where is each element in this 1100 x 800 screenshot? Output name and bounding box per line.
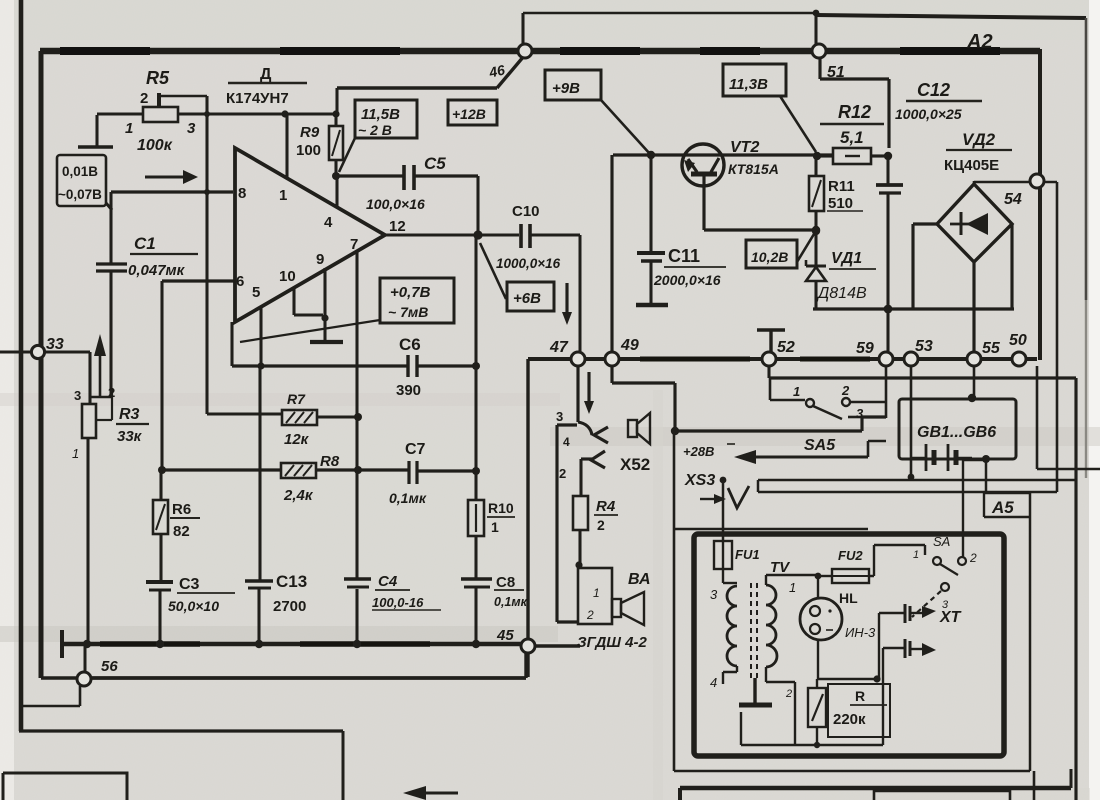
svg-text:50,0×10: 50,0×10 (168, 598, 219, 614)
svg-text:А5: А5 (991, 498, 1014, 517)
svg-text:Д: Д (260, 66, 272, 83)
svg-text:47: 47 (549, 339, 569, 356)
svg-text:С13: С13 (276, 572, 307, 591)
svg-text:1000,0×25: 1000,0×25 (895, 106, 962, 122)
svg-text:~0,07В: ~0,07В (58, 187, 102, 202)
svg-text:0,1мк: 0,1мк (389, 490, 427, 506)
svg-text:3: 3 (187, 120, 196, 137)
svg-text:45: 45 (496, 627, 514, 644)
svg-text:R9: R9 (300, 124, 320, 141)
svg-text:1: 1 (913, 549, 919, 561)
svg-text:55: 55 (982, 340, 1001, 357)
svg-text:2: 2 (140, 90, 148, 107)
svg-text:R10: R10 (488, 500, 514, 516)
svg-text:VД1: VД1 (831, 250, 862, 267)
svg-text:R3: R3 (119, 406, 140, 423)
svg-text:~ 2 В: ~ 2 В (358, 122, 392, 138)
svg-text:4: 4 (710, 675, 717, 690)
svg-text:R11: R11 (828, 178, 855, 195)
svg-text:Х52: Х52 (620, 455, 650, 474)
svg-text:С7: С7 (405, 441, 426, 458)
svg-text:R8: R8 (320, 453, 340, 470)
svg-text:46: 46 (487, 62, 507, 81)
svg-text:100,0×16: 100,0×16 (366, 196, 425, 212)
svg-text:ХТ: ХТ (939, 609, 962, 626)
svg-text:2: 2 (969, 551, 977, 565)
svg-text:С12: С12 (917, 80, 950, 100)
svg-text:3: 3 (556, 409, 563, 424)
svg-text:1: 1 (72, 446, 79, 461)
svg-text:С10: С10 (512, 203, 540, 220)
svg-text:ВА: ВА (628, 571, 651, 588)
svg-text:56: 56 (101, 658, 118, 675)
svg-text:5,1: 5,1 (840, 128, 864, 147)
svg-text:3: 3 (74, 388, 81, 403)
svg-text:1: 1 (593, 586, 600, 600)
svg-text:0,047мк: 0,047мк (128, 262, 186, 279)
svg-text:R: R (855, 688, 865, 704)
svg-text:59: 59 (856, 340, 874, 357)
svg-text:6: 6 (236, 273, 244, 290)
svg-text:53: 53 (915, 338, 933, 355)
svg-text:VД2: VД2 (962, 130, 996, 149)
svg-text:+28В: +28В (683, 444, 714, 459)
svg-text:С4: С4 (378, 573, 398, 590)
svg-text:С11: С11 (668, 246, 700, 266)
svg-text:2,4к: 2,4к (283, 487, 314, 504)
svg-text:R12: R12 (838, 102, 871, 122)
svg-text:ЗГДШ 4-2: ЗГДШ 4-2 (577, 634, 647, 651)
svg-text:7: 7 (350, 236, 358, 253)
svg-text:11,3В: 11,3В (729, 76, 768, 93)
svg-text:КТ815А: КТ815А (728, 161, 779, 177)
svg-text:50: 50 (1009, 332, 1027, 349)
svg-text:1: 1 (125, 120, 133, 137)
svg-text:2: 2 (559, 466, 566, 481)
svg-text:10: 10 (279, 268, 296, 285)
svg-text:FU2: FU2 (838, 548, 863, 563)
svg-text:+0,7В: +0,7В (390, 284, 431, 301)
svg-text:С1: С1 (134, 234, 156, 253)
svg-text:ХS3: ХS3 (684, 472, 715, 489)
svg-text:8: 8 (238, 185, 246, 202)
svg-text:390: 390 (396, 382, 421, 399)
svg-text:100,0-16: 100,0-16 (372, 595, 424, 610)
svg-text:+12В: +12В (452, 106, 486, 122)
svg-text:2700: 2700 (273, 598, 306, 615)
svg-text:1: 1 (279, 187, 287, 204)
svg-text:33к: 33к (117, 428, 143, 445)
svg-text:510: 510 (828, 195, 853, 212)
svg-text:2000,0×16: 2000,0×16 (653, 272, 721, 288)
svg-text:1: 1 (793, 384, 800, 399)
svg-text:VТ2: VТ2 (730, 139, 759, 156)
svg-text:КЦ405Е: КЦ405Е (944, 157, 999, 174)
svg-text:К174УН7: К174УН7 (226, 90, 289, 107)
svg-text:4: 4 (324, 214, 333, 231)
svg-text:SA5: SA5 (804, 437, 836, 454)
svg-text:~ 7мВ: ~ 7мВ (388, 304, 428, 320)
svg-text:R5: R5 (146, 68, 170, 88)
svg-text:220к: 220к (833, 711, 866, 728)
svg-text:1: 1 (789, 580, 796, 595)
svg-text:А2: А2 (966, 31, 993, 53)
svg-text:2: 2 (108, 385, 115, 400)
svg-text:82: 82 (173, 523, 190, 540)
svg-text:С6: С6 (399, 335, 421, 354)
svg-text:11,5В: 11,5В (361, 106, 400, 123)
svg-text:52: 52 (777, 339, 795, 356)
svg-text:4: 4 (563, 435, 570, 449)
svg-text:2: 2 (785, 688, 792, 700)
svg-text:100: 100 (296, 142, 321, 159)
svg-text:С3: С3 (179, 576, 200, 593)
svg-text:FU1: FU1 (735, 547, 760, 562)
svg-text:SA: SA (933, 534, 950, 549)
svg-text:9: 9 (316, 251, 324, 268)
svg-text:С5: С5 (424, 154, 446, 173)
svg-text:С8: С8 (496, 574, 515, 591)
svg-text:1000,0×16: 1000,0×16 (496, 256, 561, 271)
svg-text:R6: R6 (172, 501, 191, 518)
svg-text:5: 5 (252, 284, 260, 301)
svg-text:ИН-3: ИН-3 (845, 625, 876, 640)
svg-text:1: 1 (491, 519, 499, 535)
svg-text:2: 2 (841, 383, 850, 398)
svg-text:3: 3 (710, 587, 718, 602)
svg-text:33: 33 (46, 336, 64, 353)
svg-text:HL: HL (839, 590, 858, 606)
svg-text:51: 51 (827, 64, 845, 81)
svg-text:100к: 100к (137, 137, 173, 154)
svg-text:3: 3 (856, 406, 864, 421)
svg-text:+6В: +6В (513, 290, 541, 307)
svg-text:10,2В: 10,2В (751, 249, 788, 265)
svg-text:12к: 12к (284, 431, 310, 448)
svg-text:54: 54 (1004, 191, 1022, 208)
svg-text:ТV: ТV (770, 559, 791, 576)
svg-text:0,01В: 0,01В (62, 164, 98, 179)
svg-text:R4: R4 (596, 498, 616, 515)
svg-text:Д814В: Д814В (816, 285, 867, 302)
svg-text:2: 2 (586, 608, 594, 622)
svg-text:2: 2 (597, 517, 605, 533)
svg-text:+9В: +9В (552, 80, 580, 97)
svg-text:49: 49 (620, 337, 639, 354)
svg-text:GB1...GB6: GB1...GB6 (917, 424, 996, 441)
svg-text:12: 12 (389, 218, 406, 235)
svg-text:R7: R7 (287, 391, 306, 407)
svg-text:0,1мк: 0,1мк (494, 595, 528, 609)
